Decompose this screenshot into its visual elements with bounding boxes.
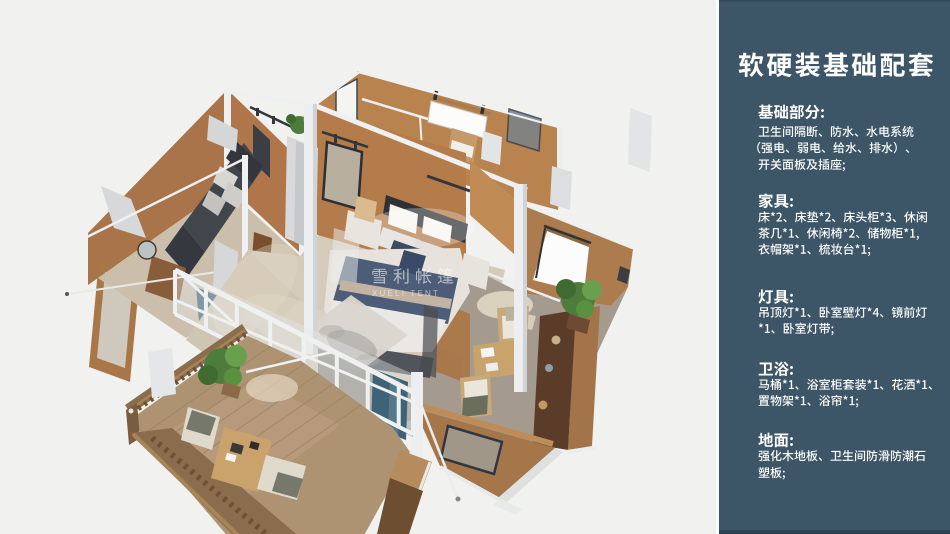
svg-text:XUELI TENT: XUELI TENT (372, 289, 440, 298)
